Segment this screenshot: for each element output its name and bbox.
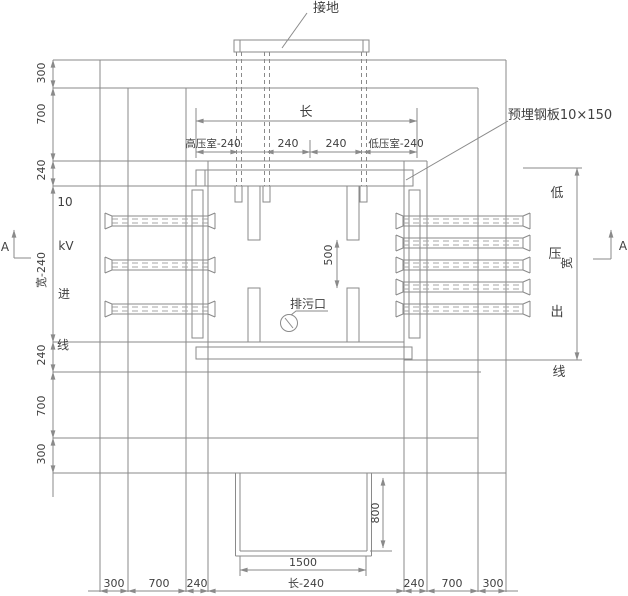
section-marker-left (14, 230, 31, 258)
hv-label-kv: kV (58, 239, 74, 253)
hv-label-10: 10 (57, 195, 72, 209)
leader-lines (282, 13, 508, 180)
hv-bushing (105, 301, 215, 317)
dim-left-300a: 300 (35, 63, 48, 84)
hv-bushing (105, 213, 215, 229)
lv-bushing (396, 301, 530, 317)
transformer-rails (248, 186, 359, 342)
lv-bushing (396, 257, 530, 273)
dim-left-300b: 300 (35, 444, 48, 465)
section-a-right-label: A (619, 239, 628, 253)
dim-left-width: 宽-240 (34, 252, 48, 288)
building-grid (53, 60, 582, 592)
section-marker-right (593, 230, 611, 259)
dim-bottom-length: 长-240 (288, 577, 324, 590)
grounding-strip (234, 40, 369, 52)
dim-hv-room: 高压室-240 (185, 137, 240, 150)
lv-outgoing-bushings (396, 213, 530, 317)
lv-label-line: 线 (552, 365, 565, 380)
hv-label-line: 线 (57, 338, 69, 352)
plate-leader-line (406, 121, 508, 180)
dim-trench-1500: 1500 (289, 556, 317, 569)
grounding-leader-line (282, 13, 307, 48)
embedded-steel-plate (196, 170, 413, 186)
lv-bushing (396, 279, 530, 295)
dim-left-700b: 700 (35, 396, 48, 417)
dim-left-240b: 240 (35, 345, 48, 366)
lv-bushing (396, 213, 530, 229)
dim-lv-room: 低压室-240 (368, 137, 423, 150)
dim-bottom-300b: 300 (483, 577, 504, 590)
transformer-foundation-plan: 接地 预埋钢板10×150 排污口 长 高压室-240 240 240 低压室-… (0, 0, 628, 596)
section-a-left-label: A (1, 240, 10, 254)
dim-rail-gap-500: 500 (322, 245, 335, 266)
dim-bottom-240a: 240 (187, 577, 208, 590)
lv-label-out: 出 (550, 305, 563, 320)
drain-tick (285, 318, 293, 328)
hv-incoming-bushings (105, 213, 215, 317)
drain-outlet-label: 排污口 (290, 297, 326, 311)
wall-slots (192, 190, 420, 359)
dim-bottom-300a: 300 (104, 577, 125, 590)
hv-bushing (105, 257, 215, 273)
lv-label-low: 低 (550, 186, 563, 201)
dim-bottom-700b: 700 (442, 577, 463, 590)
grounding-label: 接地 (313, 0, 339, 16)
embedded-plate-label: 预埋钢板10×150 (508, 108, 612, 123)
dim-bottom-700a: 700 (149, 577, 170, 590)
dim-240-b: 240 (326, 137, 347, 150)
lv-bushing (396, 235, 530, 251)
dim-trench-800: 800 (369, 503, 382, 524)
hv-label-in: 进 (58, 287, 70, 301)
dim-240-a: 240 (278, 137, 299, 150)
dim-bottom-240b: 240 (404, 577, 425, 590)
dim-left-240a: 240 (35, 160, 48, 181)
dimension-lines (53, 60, 577, 591)
foundation-plan-drawing: 接地 预埋钢板10×150 排污口 长 高压室-240 240 240 低压室-… (0, 0, 628, 596)
drain-leader-line (291, 311, 328, 315)
dim-left-700a: 700 (35, 104, 48, 125)
dim-length-top: 长 (299, 105, 312, 120)
drain-outlet (281, 311, 329, 332)
lv-label-volt: 压 (548, 247, 561, 262)
cable-trench (236, 473, 372, 556)
